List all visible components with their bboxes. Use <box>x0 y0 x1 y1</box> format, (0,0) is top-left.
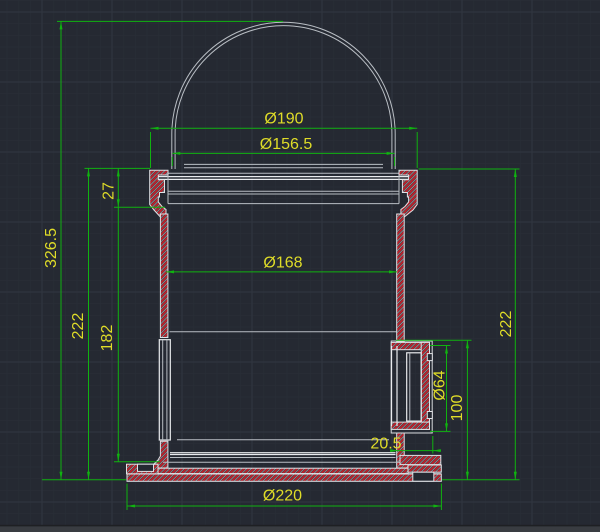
svg-text:20.5: 20.5 <box>370 436 401 453</box>
svg-text:27: 27 <box>101 182 118 200</box>
svg-text:Ø168: Ø168 <box>263 255 302 272</box>
svg-text:326.5: 326.5 <box>43 228 60 268</box>
svg-text:222: 222 <box>498 311 515 338</box>
svg-text:182: 182 <box>99 325 116 352</box>
svg-text:Ø64: Ø64 <box>432 370 449 400</box>
svg-text:Ø220: Ø220 <box>263 488 302 505</box>
svg-text:100: 100 <box>449 395 466 422</box>
svg-text:Ø190: Ø190 <box>264 111 303 128</box>
svg-text:222: 222 <box>70 313 87 340</box>
svg-text:Ø156.5: Ø156.5 <box>260 136 313 153</box>
